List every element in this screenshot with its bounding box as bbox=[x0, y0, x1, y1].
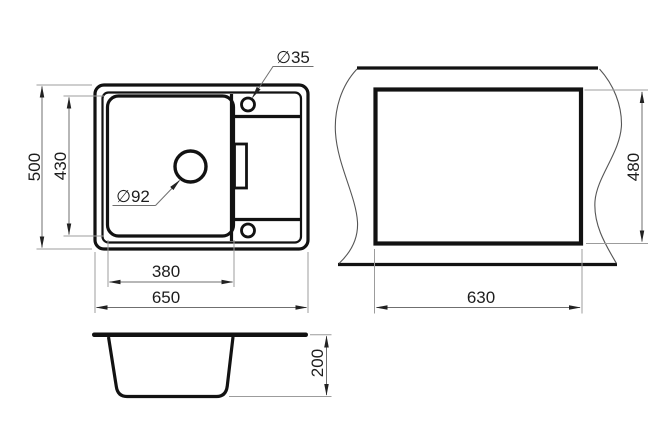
sink-outer-edge bbox=[95, 85, 308, 249]
drain-hole bbox=[175, 151, 206, 182]
cutout-rect bbox=[376, 90, 582, 244]
tap-hole-bottom bbox=[242, 224, 255, 237]
front-rim-profile bbox=[92, 333, 308, 338]
bowl-outline bbox=[108, 96, 234, 236]
dim-label-430: 430 bbox=[51, 152, 70, 180]
break-line-left bbox=[335, 69, 357, 264]
overflow-notch bbox=[235, 144, 247, 188]
dim-label-d35: ∅35 bbox=[276, 48, 310, 67]
sink-dimension-drawing: 500 430 380 650 ∅35 bbox=[0, 0, 666, 444]
dim-bowl-width: 380 bbox=[108, 240, 234, 287]
dim-label-500: 500 bbox=[25, 153, 44, 181]
dim-label-380: 380 bbox=[152, 262, 180, 281]
dim-label-630: 630 bbox=[467, 288, 495, 307]
dim-label-650: 650 bbox=[152, 288, 180, 307]
technical-drawing-canvas: 500 430 380 650 ∅35 bbox=[0, 0, 666, 444]
leader-tap-hole: ∅35 bbox=[253, 48, 314, 98]
front-view: 200 bbox=[92, 333, 332, 397]
dim-label-d92: ∅92 bbox=[116, 187, 150, 206]
break-line-right bbox=[595, 69, 622, 264]
cutout-view: 480 630 bbox=[335, 68, 648, 314]
dim-label-200: 200 bbox=[308, 349, 327, 377]
top-view: 500 430 380 650 ∅35 bbox=[25, 48, 314, 313]
dim-cutout-width: 630 bbox=[375, 249, 583, 314]
leader-drain: ∅92 bbox=[113, 181, 180, 207]
tap-hole-top bbox=[242, 98, 255, 111]
dim-label-480: 480 bbox=[624, 153, 643, 181]
dim-cutout-height: 480 bbox=[585, 90, 649, 244]
dim-bowl-height: 200 bbox=[229, 335, 332, 397]
front-bowl-profile bbox=[109, 337, 234, 397]
